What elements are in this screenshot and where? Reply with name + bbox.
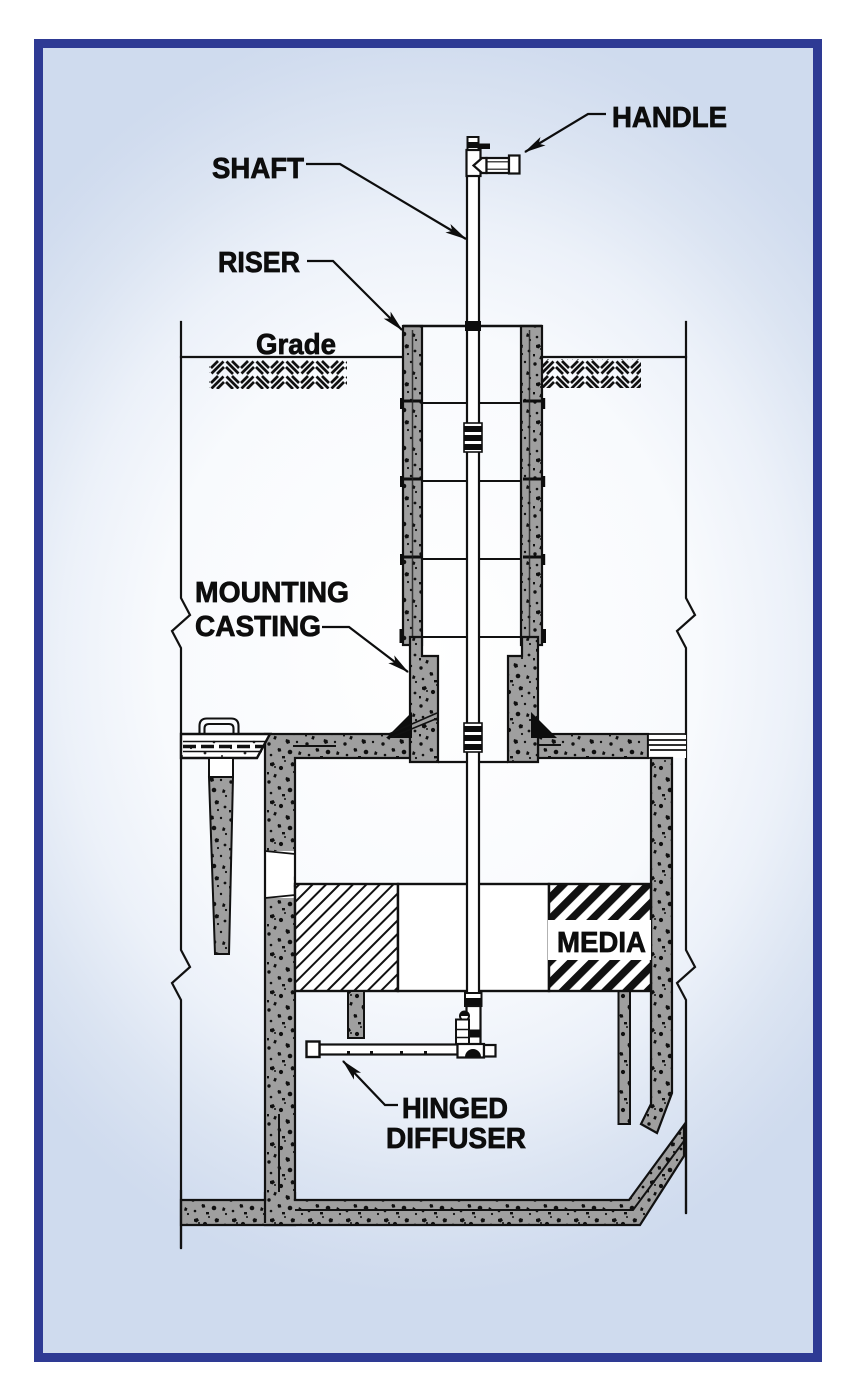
svg-text:SHAFT: SHAFT	[212, 153, 304, 185]
svg-text:MEDIA: MEDIA	[557, 927, 646, 959]
svg-text:RISER: RISER	[218, 247, 300, 279]
svg-text:HINGED: HINGED	[402, 1093, 508, 1125]
svg-text:Grade: Grade	[256, 329, 336, 361]
svg-text:CASTING: CASTING	[195, 611, 321, 643]
svg-text:MOUNTING: MOUNTING	[195, 577, 349, 609]
svg-text:HANDLE: HANDLE	[612, 102, 727, 134]
svg-text:DIFFUSER: DIFFUSER	[386, 1123, 526, 1155]
